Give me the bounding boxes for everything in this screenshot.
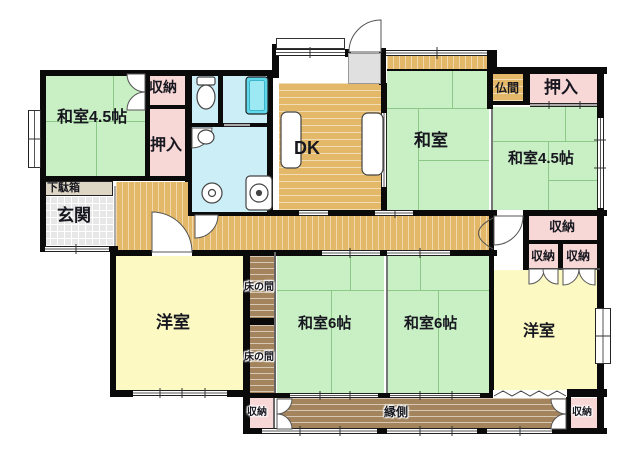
closet-front-line	[529, 268, 600, 270]
label-yoshitsu-right: 洋室	[523, 324, 555, 340]
wall	[188, 212, 273, 216]
wall	[597, 67, 604, 118]
door-opening-dk	[299, 210, 328, 216]
sliding-door-washitsu6-right-top	[387, 250, 450, 256]
wall	[529, 240, 600, 244]
wall	[243, 250, 250, 397]
tatami-line	[438, 290, 439, 393]
wall	[328, 210, 375, 216]
label-oshiire-left: 押入	[150, 138, 182, 154]
wall	[597, 208, 604, 308]
tatami-line	[387, 108, 489, 109]
room-washroom	[192, 127, 267, 212]
label-oshiire-top-right: 押入	[544, 79, 578, 96]
corridor-entry	[116, 182, 192, 250]
tatami-line	[548, 180, 597, 181]
sliding-door-genkan	[45, 246, 109, 252]
door-swing-icon	[349, 20, 381, 52]
label-washitsu-4-5-top-right: 和室4.5帖	[508, 151, 574, 166]
window-hallway-top	[386, 50, 487, 56]
wall	[490, 101, 530, 105]
sliding-door-dk-east	[381, 113, 387, 187]
tatami-line	[331, 290, 332, 393]
tatami-line	[418, 108, 419, 210]
wall	[378, 393, 390, 398]
tatami-line	[418, 160, 489, 161]
wall	[113, 250, 152, 256]
wall	[480, 393, 493, 398]
corridor-main	[192, 216, 489, 250]
label-washitsu-4-5-top-left: 和室4.5帖	[57, 110, 127, 126]
label-yoshitsu-left: 洋室	[156, 314, 190, 331]
tokonoma-edge-line	[274, 252, 276, 393]
room-engawa	[277, 398, 566, 428]
wall	[192, 70, 273, 76]
window-yoshitsu-right	[595, 308, 611, 364]
wall	[247, 393, 290, 398]
label-getabako: 下駄箱	[47, 183, 80, 194]
label-washitsu-center: 和室	[414, 132, 448, 149]
tatami-line	[565, 107, 566, 141]
sliding-door-washitsu6-left-bottom	[290, 393, 378, 398]
window-engawa-1	[262, 428, 377, 434]
wall	[188, 126, 192, 214]
tatami-line	[420, 256, 421, 290]
label-washitsu-6-right: 和室6帖	[404, 316, 457, 331]
label-shuno-right-2: 収納	[566, 250, 590, 262]
tatami-line	[350, 256, 351, 290]
room-bath	[223, 76, 267, 123]
label-washitsu-6-left: 和室6帖	[298, 316, 351, 331]
label-shuno-top-left: 収納	[149, 80, 177, 94]
accordion-door-band	[493, 390, 567, 397]
wall	[489, 270, 494, 396]
wall	[267, 70, 273, 216]
sliding-door-kitchen	[276, 49, 345, 56]
label-engawa: 縁側	[384, 406, 408, 418]
label-shuno-right-wide: 収納	[549, 220, 575, 233]
room-toilet	[192, 76, 218, 123]
wall	[43, 176, 192, 181]
window-yoshitsu-left	[133, 390, 227, 396]
genkan-step-line	[114, 186, 116, 246]
label-genkan: 玄関	[57, 207, 91, 224]
closet-edge-line	[273, 398, 275, 428]
wall	[413, 210, 497, 216]
wall	[110, 252, 116, 397]
wall	[558, 244, 563, 270]
wall	[381, 83, 387, 113]
wall	[218, 76, 223, 125]
window-right-wall	[597, 118, 604, 208]
tatami-line	[493, 141, 597, 142]
hallway-top	[387, 56, 487, 69]
door-opening-bath	[224, 123, 250, 127]
fusuma-line	[491, 109, 493, 210]
wall	[477, 428, 487, 434]
label-tokonoma-lower: 床の間	[244, 353, 274, 363]
wall	[145, 105, 190, 109]
wall	[250, 318, 275, 325]
label-shuno-right-1: 収納	[531, 250, 555, 262]
floor-plan: 和室4.5帖 収納 押入 下駄箱 玄関 DK 和室 仏間 押入 和室4.5帖 収…	[0, 0, 640, 455]
window-engawa-3	[487, 428, 552, 434]
label-shuno-bottom-left: 収納	[247, 408, 267, 418]
wall	[273, 210, 299, 216]
label-shuno-bottom-right: 収納	[572, 408, 592, 418]
wall	[487, 67, 607, 74]
wall	[567, 389, 607, 397]
label-butsuma: 仏間	[495, 82, 519, 94]
label-dk: DK	[294, 139, 320, 157]
label-tokonoma-upper: 床の間	[244, 283, 274, 293]
wall	[192, 250, 322, 256]
wall	[489, 213, 494, 270]
entrance-step	[276, 38, 345, 49]
wall	[377, 428, 387, 434]
wall	[40, 70, 192, 76]
fusuma-line	[386, 256, 388, 393]
window-engawa-2	[387, 428, 477, 434]
wall	[597, 364, 604, 434]
tatami-line	[452, 71, 453, 108]
wall	[243, 428, 262, 434]
back-door-step	[348, 53, 381, 84]
wall	[523, 210, 607, 216]
window	[28, 110, 41, 168]
tatami-line	[96, 121, 97, 176]
wall	[110, 390, 133, 397]
wall	[381, 187, 387, 212]
door-swing-icon	[494, 216, 523, 245]
door-opening-yoshitsu-left	[152, 250, 192, 256]
sliding-door-oshiire-tr	[530, 103, 597, 107]
sliding-door-washitsu-center	[375, 210, 413, 216]
wall	[552, 428, 607, 434]
sliding-door-washitsu6-left-top	[322, 250, 380, 256]
wall	[387, 69, 487, 71]
sliding-door-washitsu6-right-bottom	[390, 393, 480, 398]
